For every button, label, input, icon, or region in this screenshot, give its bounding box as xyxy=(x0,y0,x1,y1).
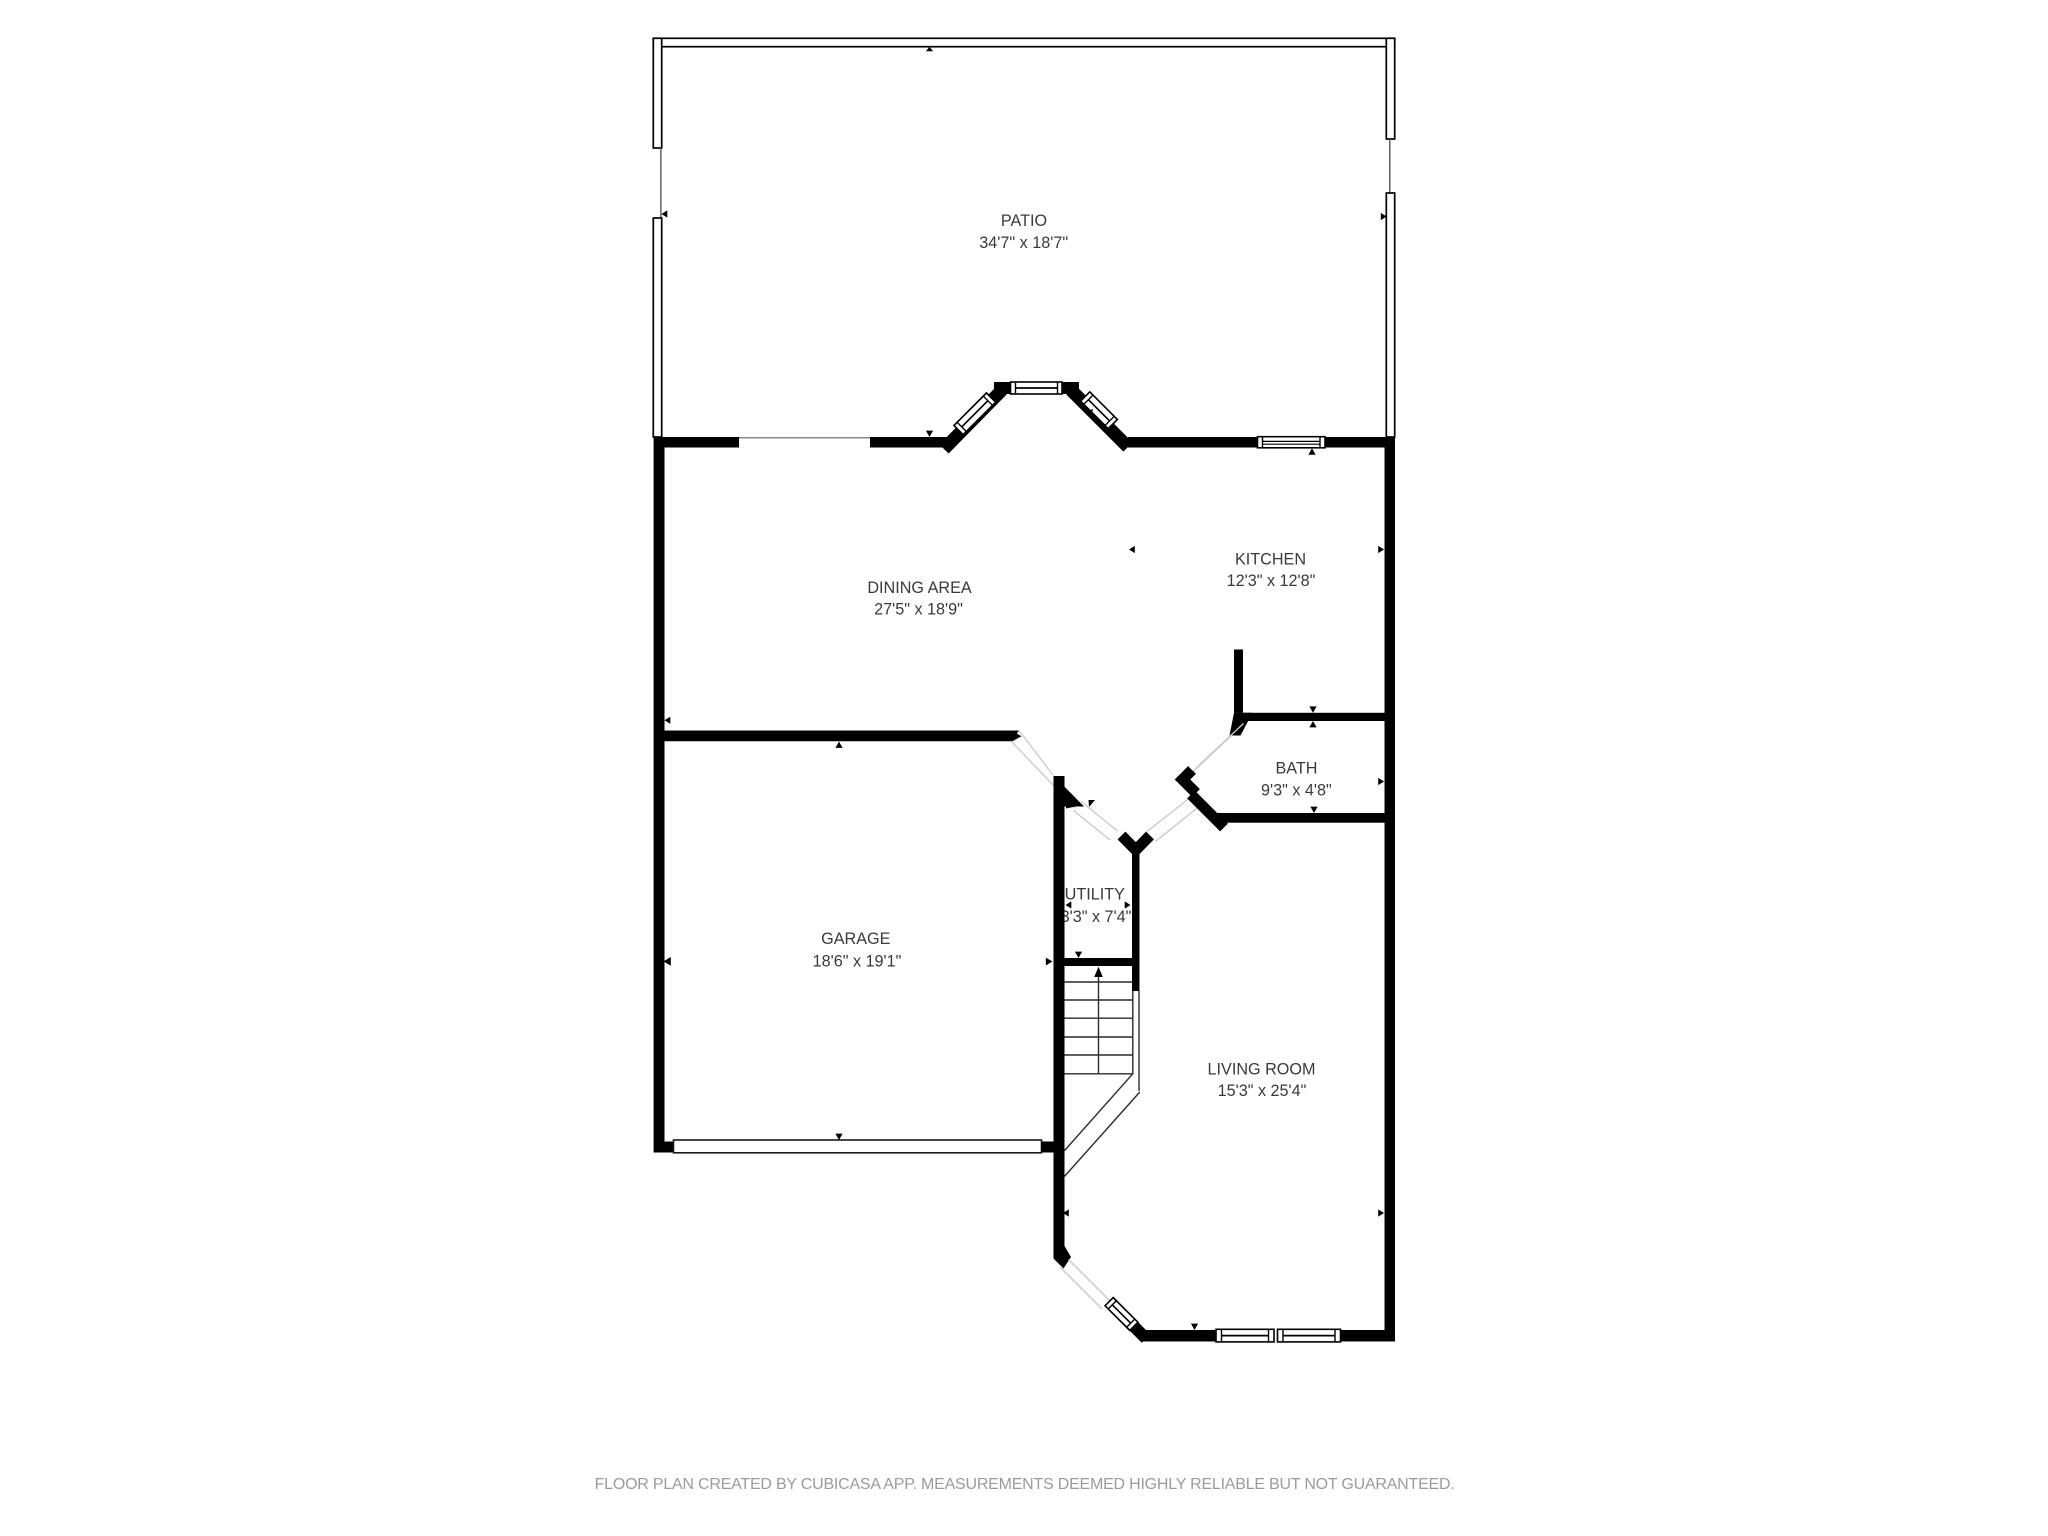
svg-text:BATH: BATH xyxy=(1276,760,1318,778)
svg-text:34'7" x 18'7": 34'7" x 18'7" xyxy=(979,234,1068,252)
svg-text:FLOOR PLAN CREATED BY CUBICASA: FLOOR PLAN CREATED BY CUBICASA APP. MEAS… xyxy=(595,1476,1455,1493)
svg-text:27'5" x 18'9": 27'5" x 18'9" xyxy=(874,600,963,618)
svg-text:LIVING ROOM: LIVING ROOM xyxy=(1208,1061,1316,1079)
svg-text:9'3" x 4'8": 9'3" x 4'8" xyxy=(1261,782,1332,800)
svg-text:3'3" x 7'4": 3'3" x 7'4" xyxy=(1061,908,1132,926)
svg-text:DINING AREA: DINING AREA xyxy=(867,579,972,597)
svg-text:18'6" x 19'1": 18'6" x 19'1" xyxy=(813,953,902,971)
svg-text:PATIO: PATIO xyxy=(1001,212,1047,230)
svg-text:12'3" x 12'8": 12'3" x 12'8" xyxy=(1227,572,1316,590)
svg-text:15'3" x 25'4": 15'3" x 25'4" xyxy=(1218,1082,1307,1100)
svg-text:GARAGE: GARAGE xyxy=(821,930,890,948)
svg-text:UTILITY: UTILITY xyxy=(1065,885,1125,903)
svg-text:KITCHEN: KITCHEN xyxy=(1235,551,1306,569)
